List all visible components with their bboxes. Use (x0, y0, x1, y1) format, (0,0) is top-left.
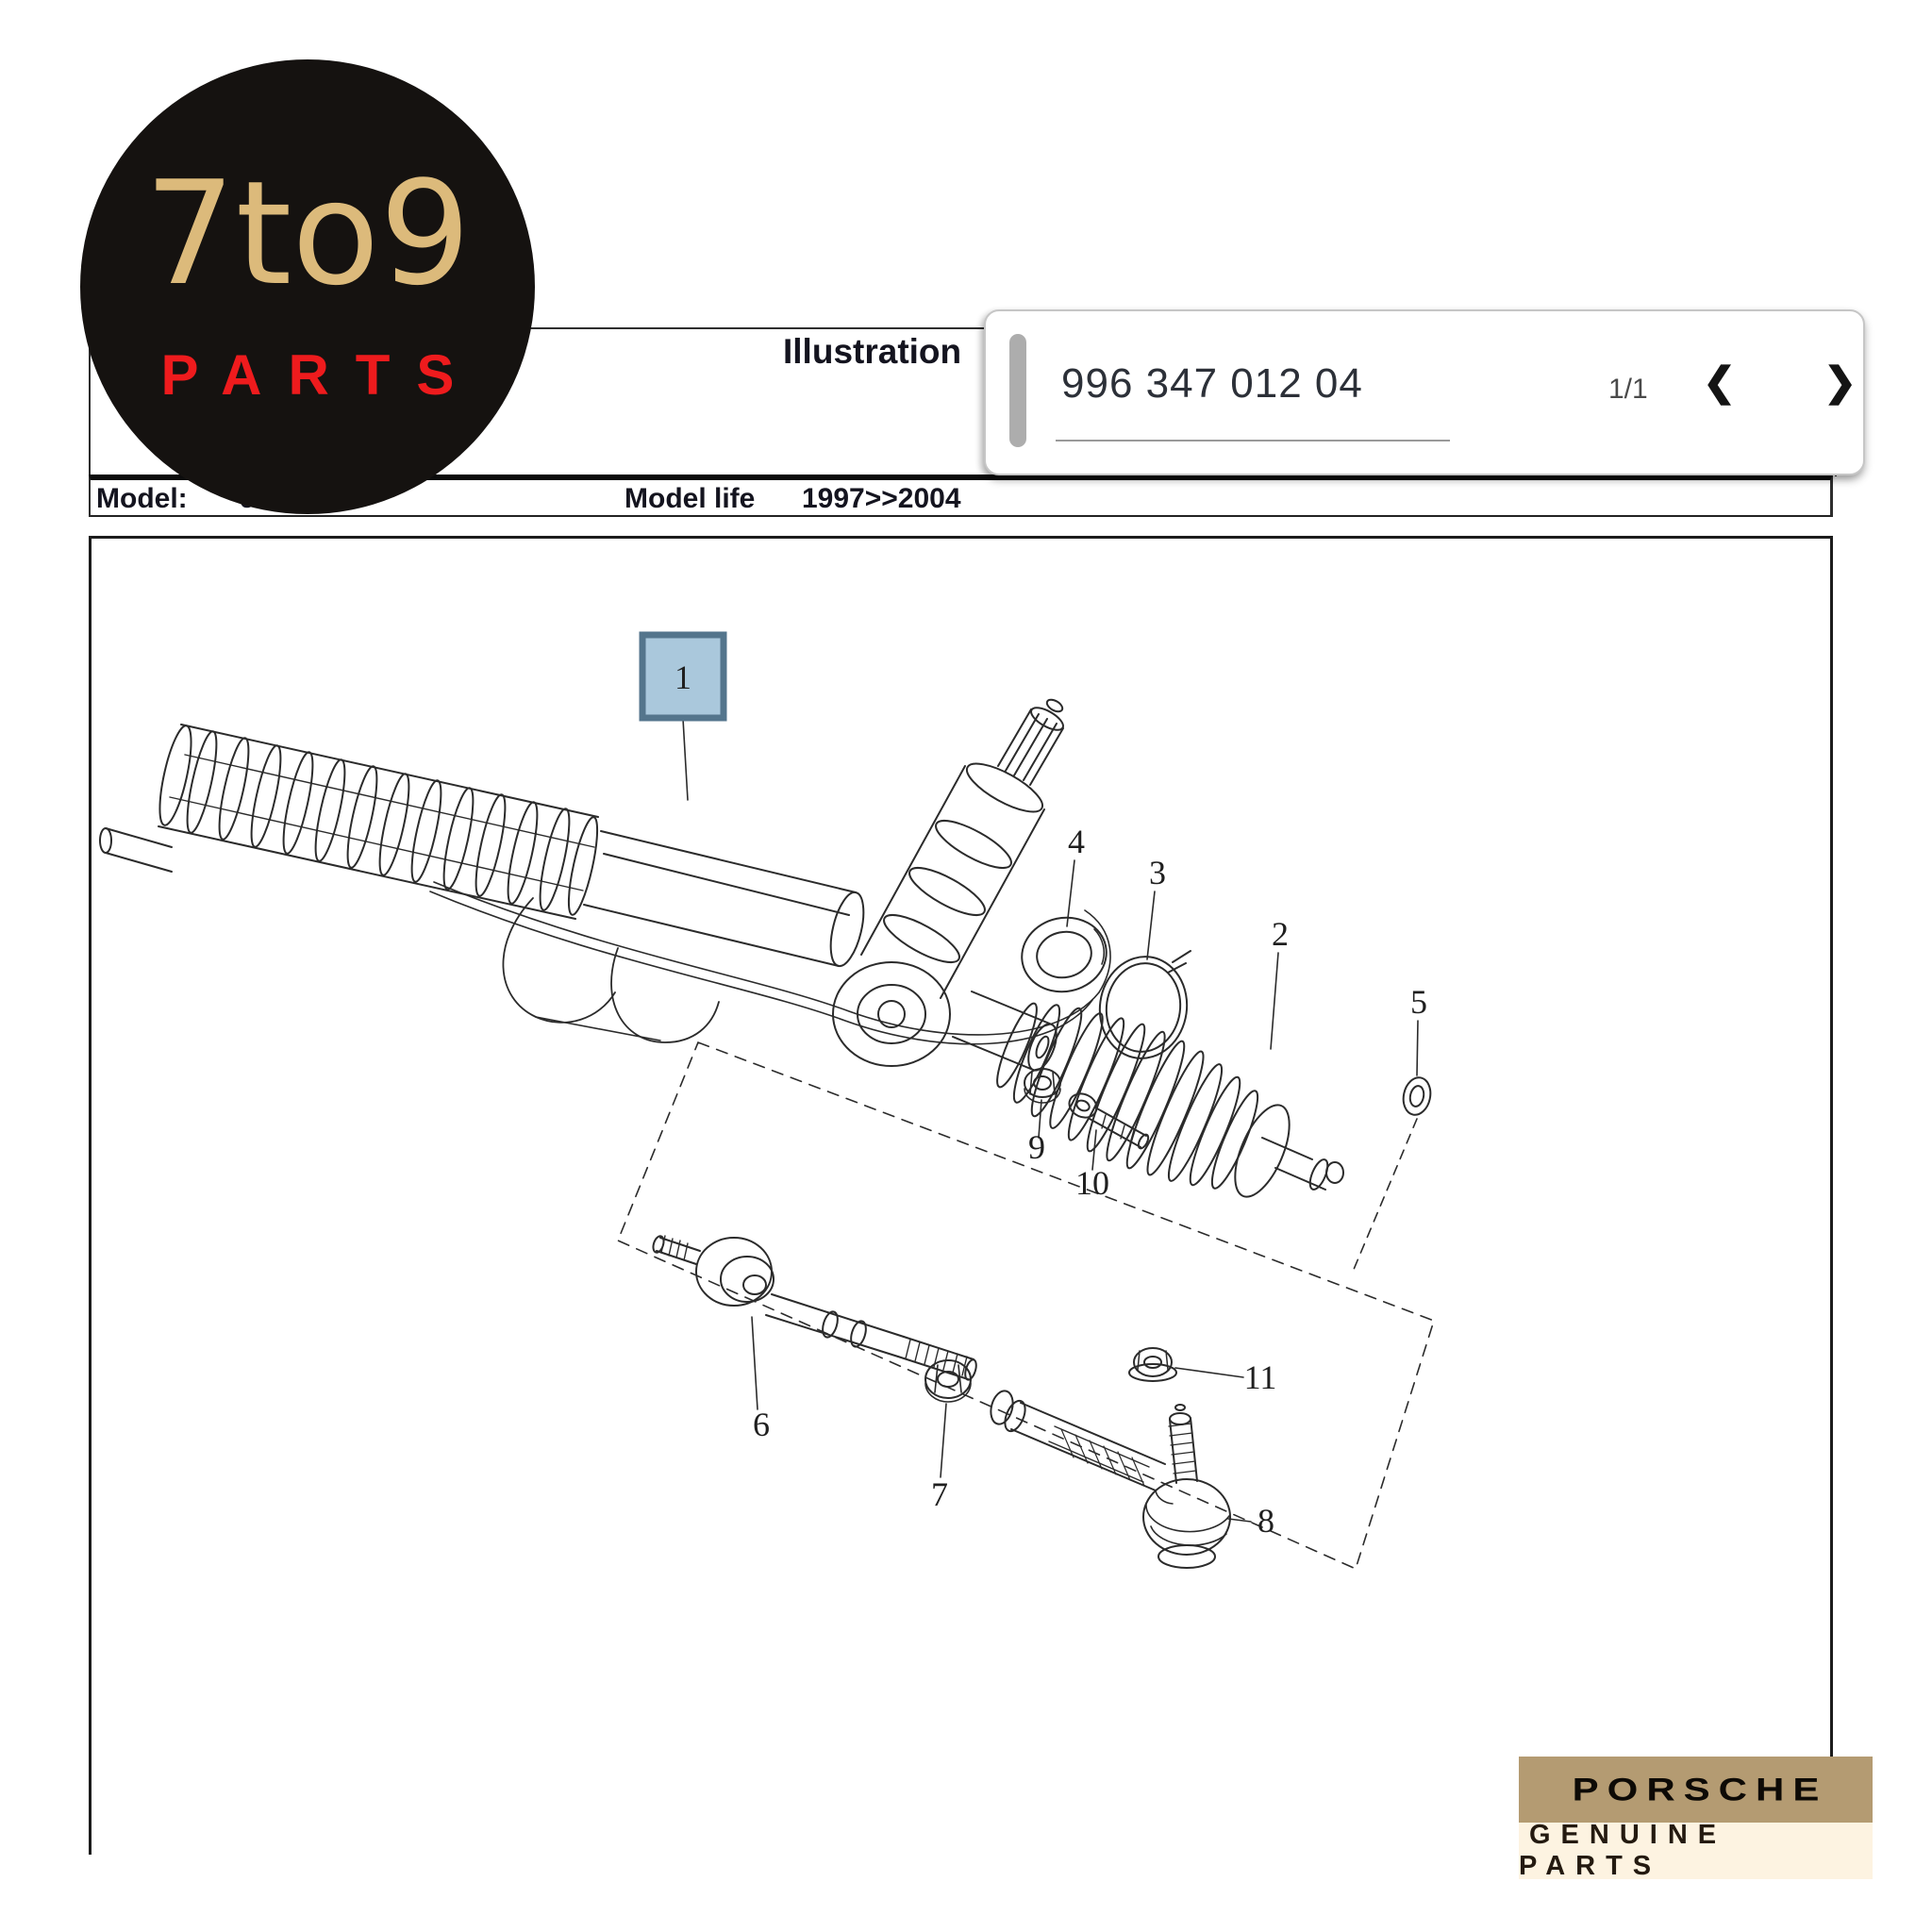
parts-catalog-page: Illustration Model: 996 04 Model life 19… (0, 0, 1932, 1932)
chevron-left-icon[interactable]: ❮ (1703, 362, 1736, 402)
porsche-brand-text: PORSCHE (1564, 1771, 1828, 1807)
input-underline (1056, 440, 1450, 441)
page-title: Illustration (783, 332, 961, 372)
page-indicator: 1/1 (1608, 374, 1648, 406)
part-number-input[interactable]: 996 347 012 04 (1061, 360, 1363, 408)
seller-logo-subtitle: PARTS (80, 342, 535, 408)
chevron-right-icon[interactable]: ❯ (1824, 362, 1857, 402)
porsche-wordmark: PORSCHE (1519, 1757, 1873, 1823)
genuine-parts-band: GENUINE PARTS (1519, 1823, 1873, 1879)
seller-logo: 7to9 PARTS (80, 59, 535, 514)
seller-logo-name: 7to9 (80, 150, 535, 317)
illustration-frame (89, 536, 1833, 1855)
part-navigator-card: 996 347 012 04 1/1 ❮ ❯ (984, 309, 1865, 475)
model-label: Model: (96, 483, 188, 515)
text-cursor-bar (1009, 334, 1026, 447)
genuine-parts-text: GENUINE PARTS (1519, 1820, 1873, 1882)
porsche-genuine-parts-badge: PORSCHE GENUINE PARTS (1519, 1757, 1873, 1879)
model-life-value: 1997>>2004 (802, 483, 961, 515)
model-life-label: Model life (625, 483, 755, 515)
